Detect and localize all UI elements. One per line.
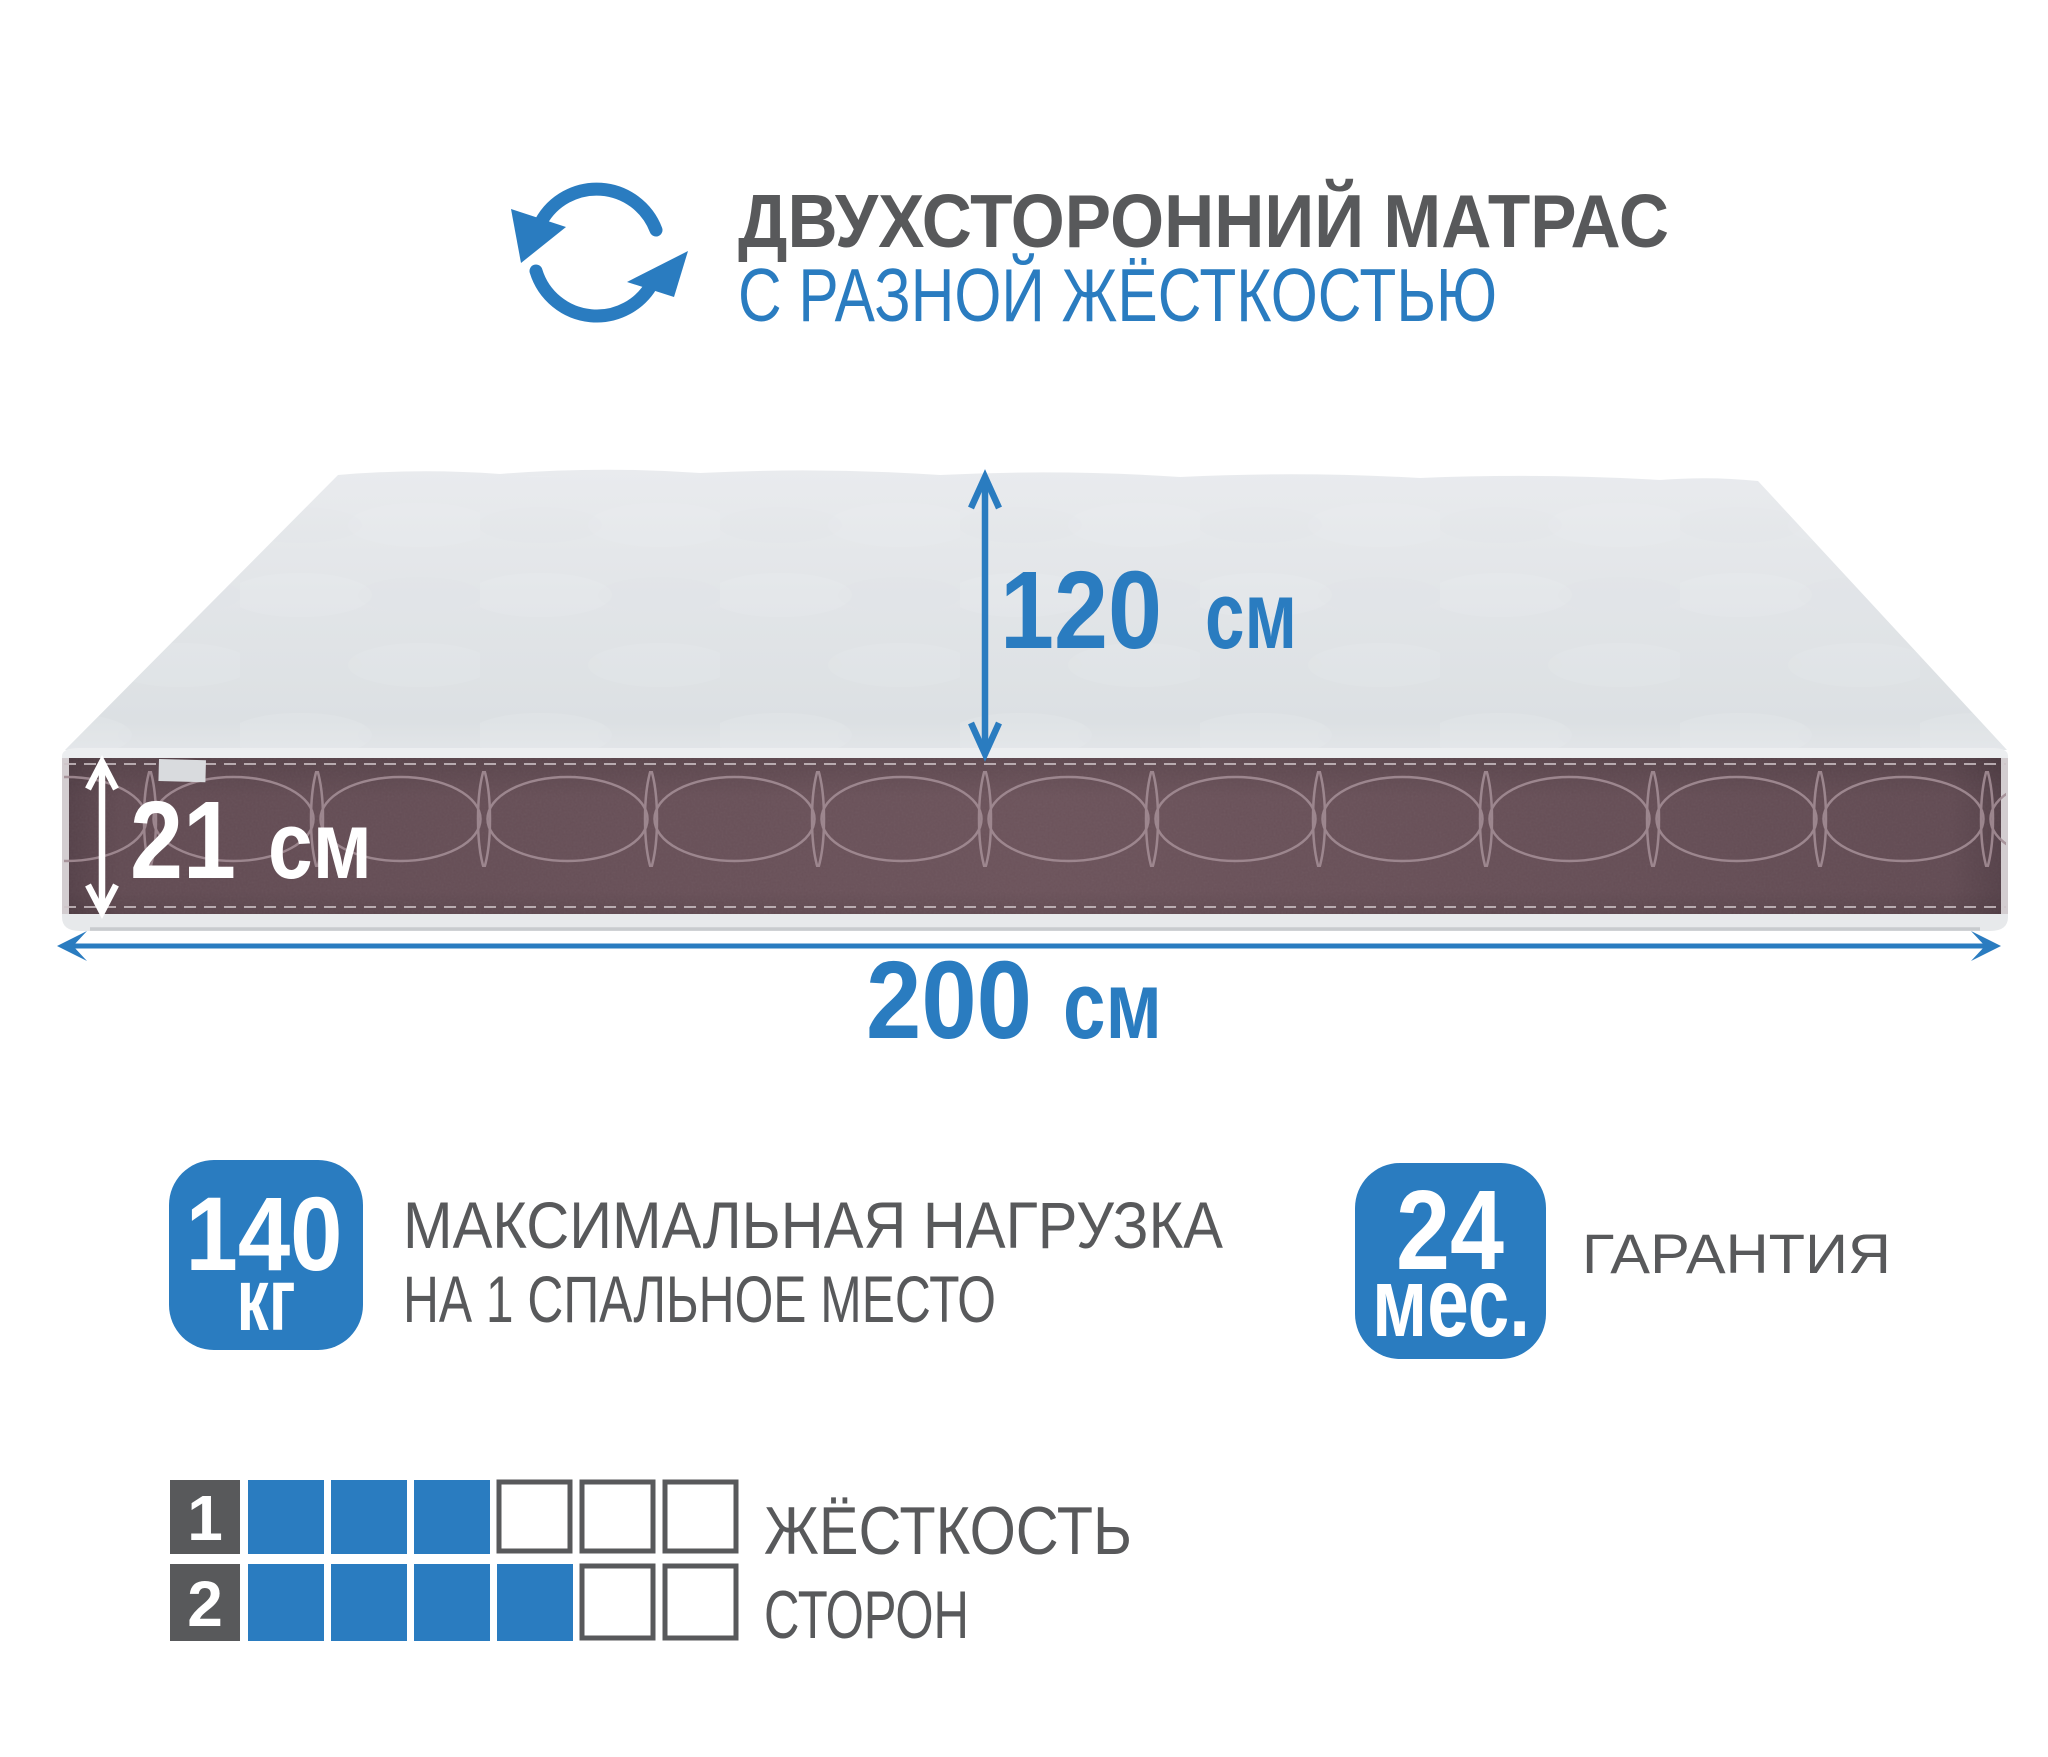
svg-text:см: см: [1205, 562, 1297, 669]
svg-text:кг: кг: [237, 1249, 296, 1349]
svg-text:200: 200: [866, 939, 1032, 1062]
svg-text:2: 2: [187, 1568, 223, 1640]
svg-text:С РАЗНОЙ ЖЁСТКОСТЬЮ: С РАЗНОЙ ЖЁСТКОСТЬЮ: [738, 253, 1497, 337]
svg-text:1: 1: [187, 1482, 223, 1554]
svg-text:мес.: мес.: [1372, 1247, 1530, 1357]
svg-text:СТОРОН: СТОРОН: [764, 1577, 969, 1653]
svg-text:см: см: [268, 792, 372, 899]
svg-text:МАКСИМАЛЬНАЯ НАГРУЗКА: МАКСИМАЛЬНАЯ НАГРУЗКА: [403, 1188, 1223, 1262]
svg-text:ЖЁСТКОСТЬ: ЖЁСТКОСТЬ: [764, 1493, 1132, 1569]
svg-text:НА 1 СПАЛЬНОЕ МЕСТО: НА 1 СПАЛЬНОЕ МЕСТО: [403, 1262, 996, 1336]
svg-text:ГАРАНТИЯ: ГАРАНТИЯ: [1582, 1222, 1891, 1285]
svg-text:см: см: [1063, 952, 1162, 1059]
svg-text:21: 21: [130, 779, 236, 902]
svg-text:ДВУХСТОРОННИЙ МАТРАС: ДВУХСТОРОННИЙ МАТРАС: [738, 179, 1669, 263]
svg-text:120: 120: [1000, 549, 1162, 672]
